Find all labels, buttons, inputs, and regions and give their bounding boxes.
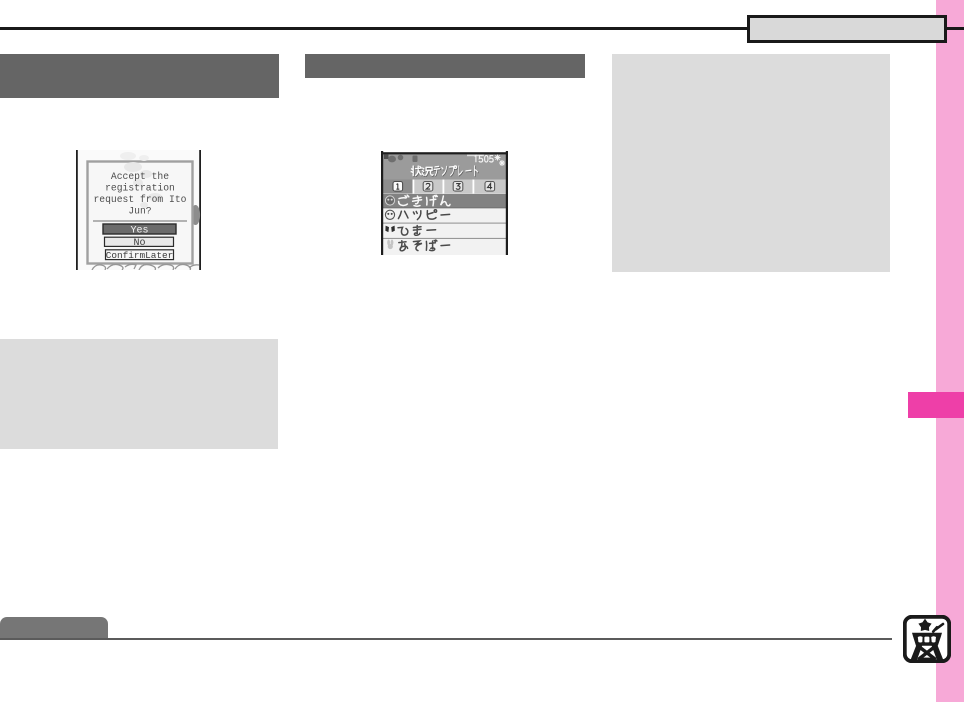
- svg-text:No: No: [133, 238, 145, 249]
- svg-text:ConfirmLater: ConfirmLater: [106, 250, 174, 261]
- svg-text:Yes: Yes: [130, 226, 148, 237]
- svg-text:registration: registration: [105, 183, 175, 194]
- svg-text:Accept the: Accept the: [111, 171, 169, 182]
- svg-text:request from Ito: request from Ito: [93, 194, 186, 205]
- svg-text:Jun?: Jun?: [128, 206, 151, 217]
